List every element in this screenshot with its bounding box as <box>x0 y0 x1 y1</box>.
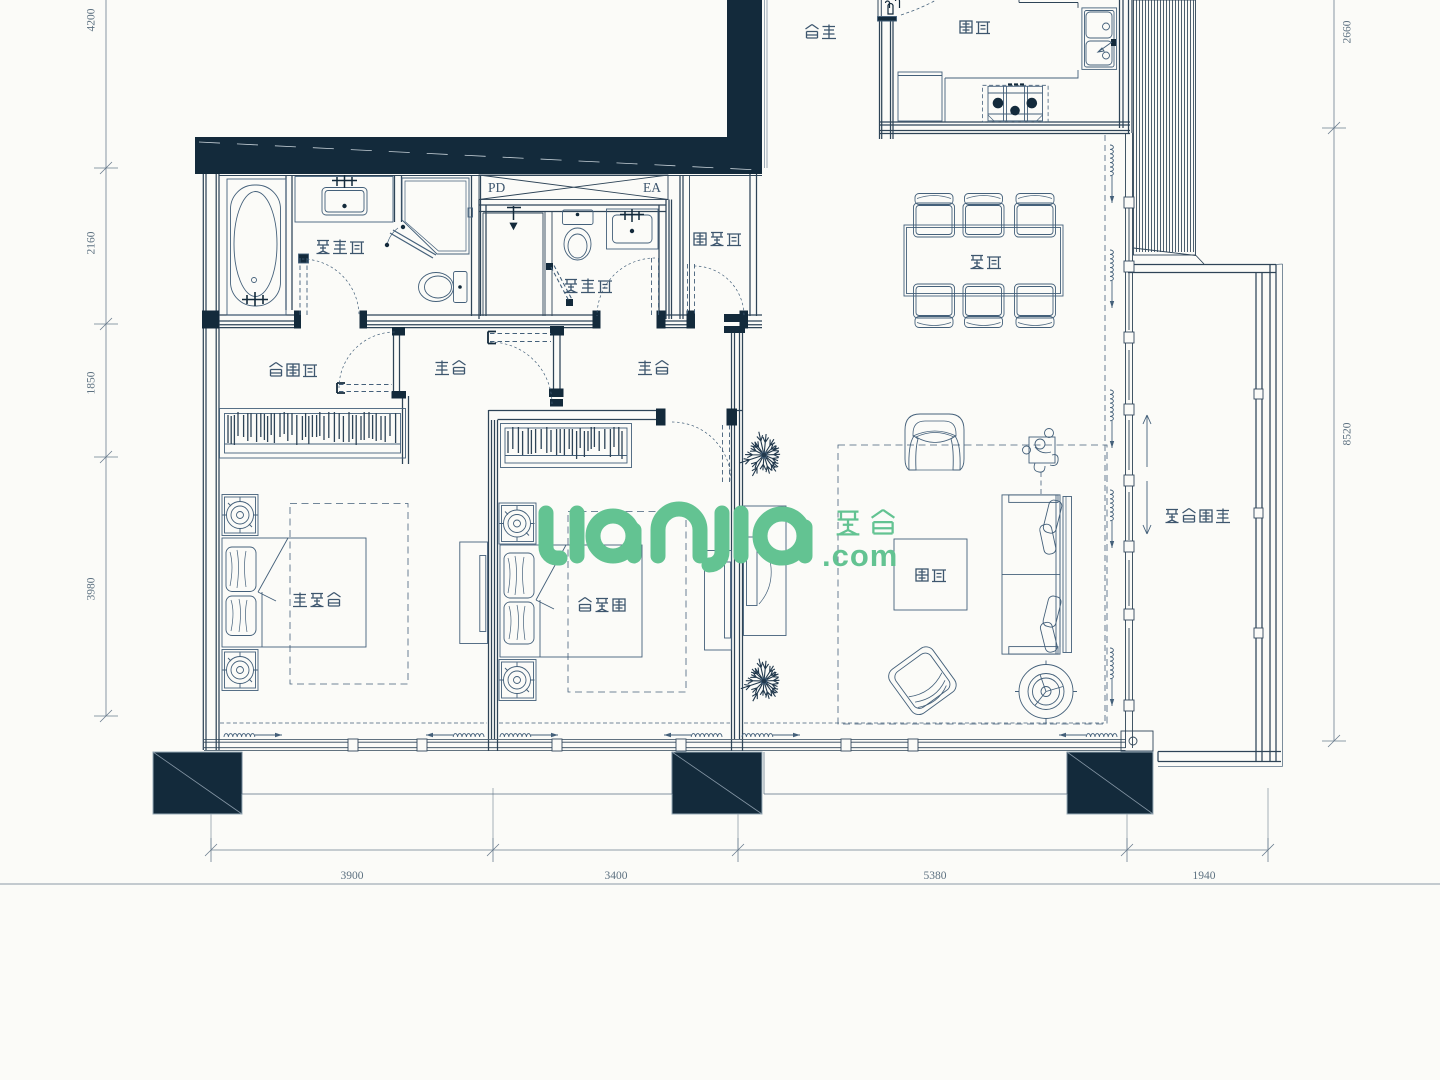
svg-text:5380: 5380 <box>924 870 947 882</box>
svg-text:1850: 1850 <box>86 371 98 394</box>
svg-text:3400: 3400 <box>605 870 628 882</box>
svg-text:PD: PD <box>488 180 506 195</box>
svg-text:3980: 3980 <box>86 577 98 600</box>
svg-text:EA: EA <box>643 180 661 195</box>
svg-text:2660: 2660 <box>1342 20 1354 43</box>
svg-text:3900: 3900 <box>341 870 364 882</box>
svg-text:.com: .com <box>822 538 898 573</box>
svg-text:2160: 2160 <box>86 231 98 254</box>
svg-text:8520: 8520 <box>1342 422 1354 445</box>
svg-text:1940: 1940 <box>1193 870 1216 882</box>
svg-text:4200: 4200 <box>86 8 98 31</box>
